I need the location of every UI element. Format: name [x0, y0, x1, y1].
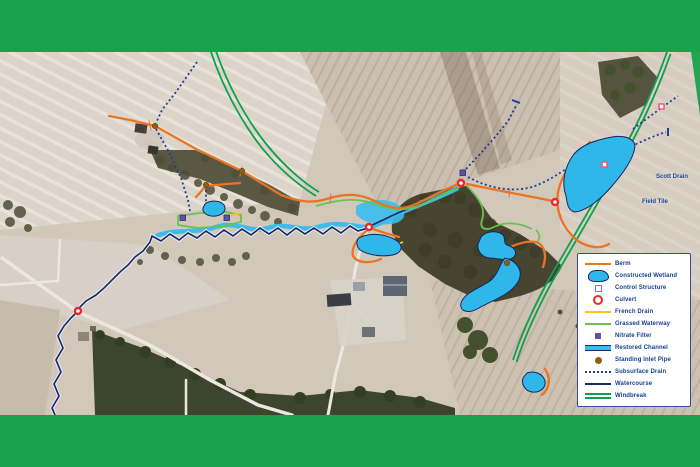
legend-label: French Drain [615, 309, 653, 315]
field-tile-label: Field Tile [642, 199, 668, 205]
culvert-symbol [593, 295, 603, 305]
legend-row-restored-channel: Restored Channel [581, 343, 687, 354]
grassed-waterway-symbol [585, 323, 611, 325]
subsurface-drain-symbol [585, 371, 611, 373]
french-drain-symbol [585, 311, 611, 314]
legend-row-windbreak: Windbreak [581, 391, 687, 402]
legend-label: Constructed Wetland [615, 273, 677, 279]
constructed-wetland-symbol [588, 270, 609, 282]
legend-row-constructed-wetland: Constructed Wetland [581, 271, 687, 282]
nitrate-filter-symbol [595, 333, 602, 340]
legend-row-nitrate-filter: Nitrate Filter [581, 331, 687, 342]
legend-label: Watercourse [615, 381, 652, 387]
legend-row-culvert: Culvert [581, 295, 687, 306]
standing-inlet-pipe-symbol [595, 357, 602, 364]
legend-row-subsurface-drain: Subsurface Drain [581, 367, 687, 378]
legend-label: Culvert [615, 297, 636, 303]
restored-channel-symbol [585, 345, 611, 351]
legend-label: Nitrate Filter [615, 333, 652, 339]
legend: Berm Constructed Wetland Control Structu… [577, 253, 691, 407]
legend-label: Berm [615, 261, 631, 267]
legend-label: Standing Inlet Pipe [615, 357, 671, 363]
legend-label: Subsurface Drain [615, 369, 666, 375]
scott-drain-label: Scott Drain [656, 174, 688, 180]
legend-label: Windbreak [615, 393, 647, 399]
figure-frame: Scott Drain Field Tile Berm Constructed … [0, 0, 700, 467]
legend-label: Grassed Waterway [615, 321, 670, 327]
legend-row-watercourse: Watercourse [581, 379, 687, 390]
legend-row-berm: Berm [581, 259, 687, 270]
legend-row-standing-inlet-pipe: Standing Inlet Pipe [581, 355, 687, 366]
windbreak-symbol [585, 393, 611, 399]
control-structure-symbol [595, 285, 602, 292]
legend-label: Restored Channel [615, 345, 668, 351]
legend-row-control-structure: Control Structure [581, 283, 687, 294]
legend-row-french-drain: French Drain [581, 307, 687, 318]
legend-row-grassed-waterway: Grassed Waterway [581, 319, 687, 330]
legend-label: Control Structure [615, 285, 666, 291]
watercourse-symbol [585, 383, 611, 386]
berm-symbol [585, 263, 611, 266]
